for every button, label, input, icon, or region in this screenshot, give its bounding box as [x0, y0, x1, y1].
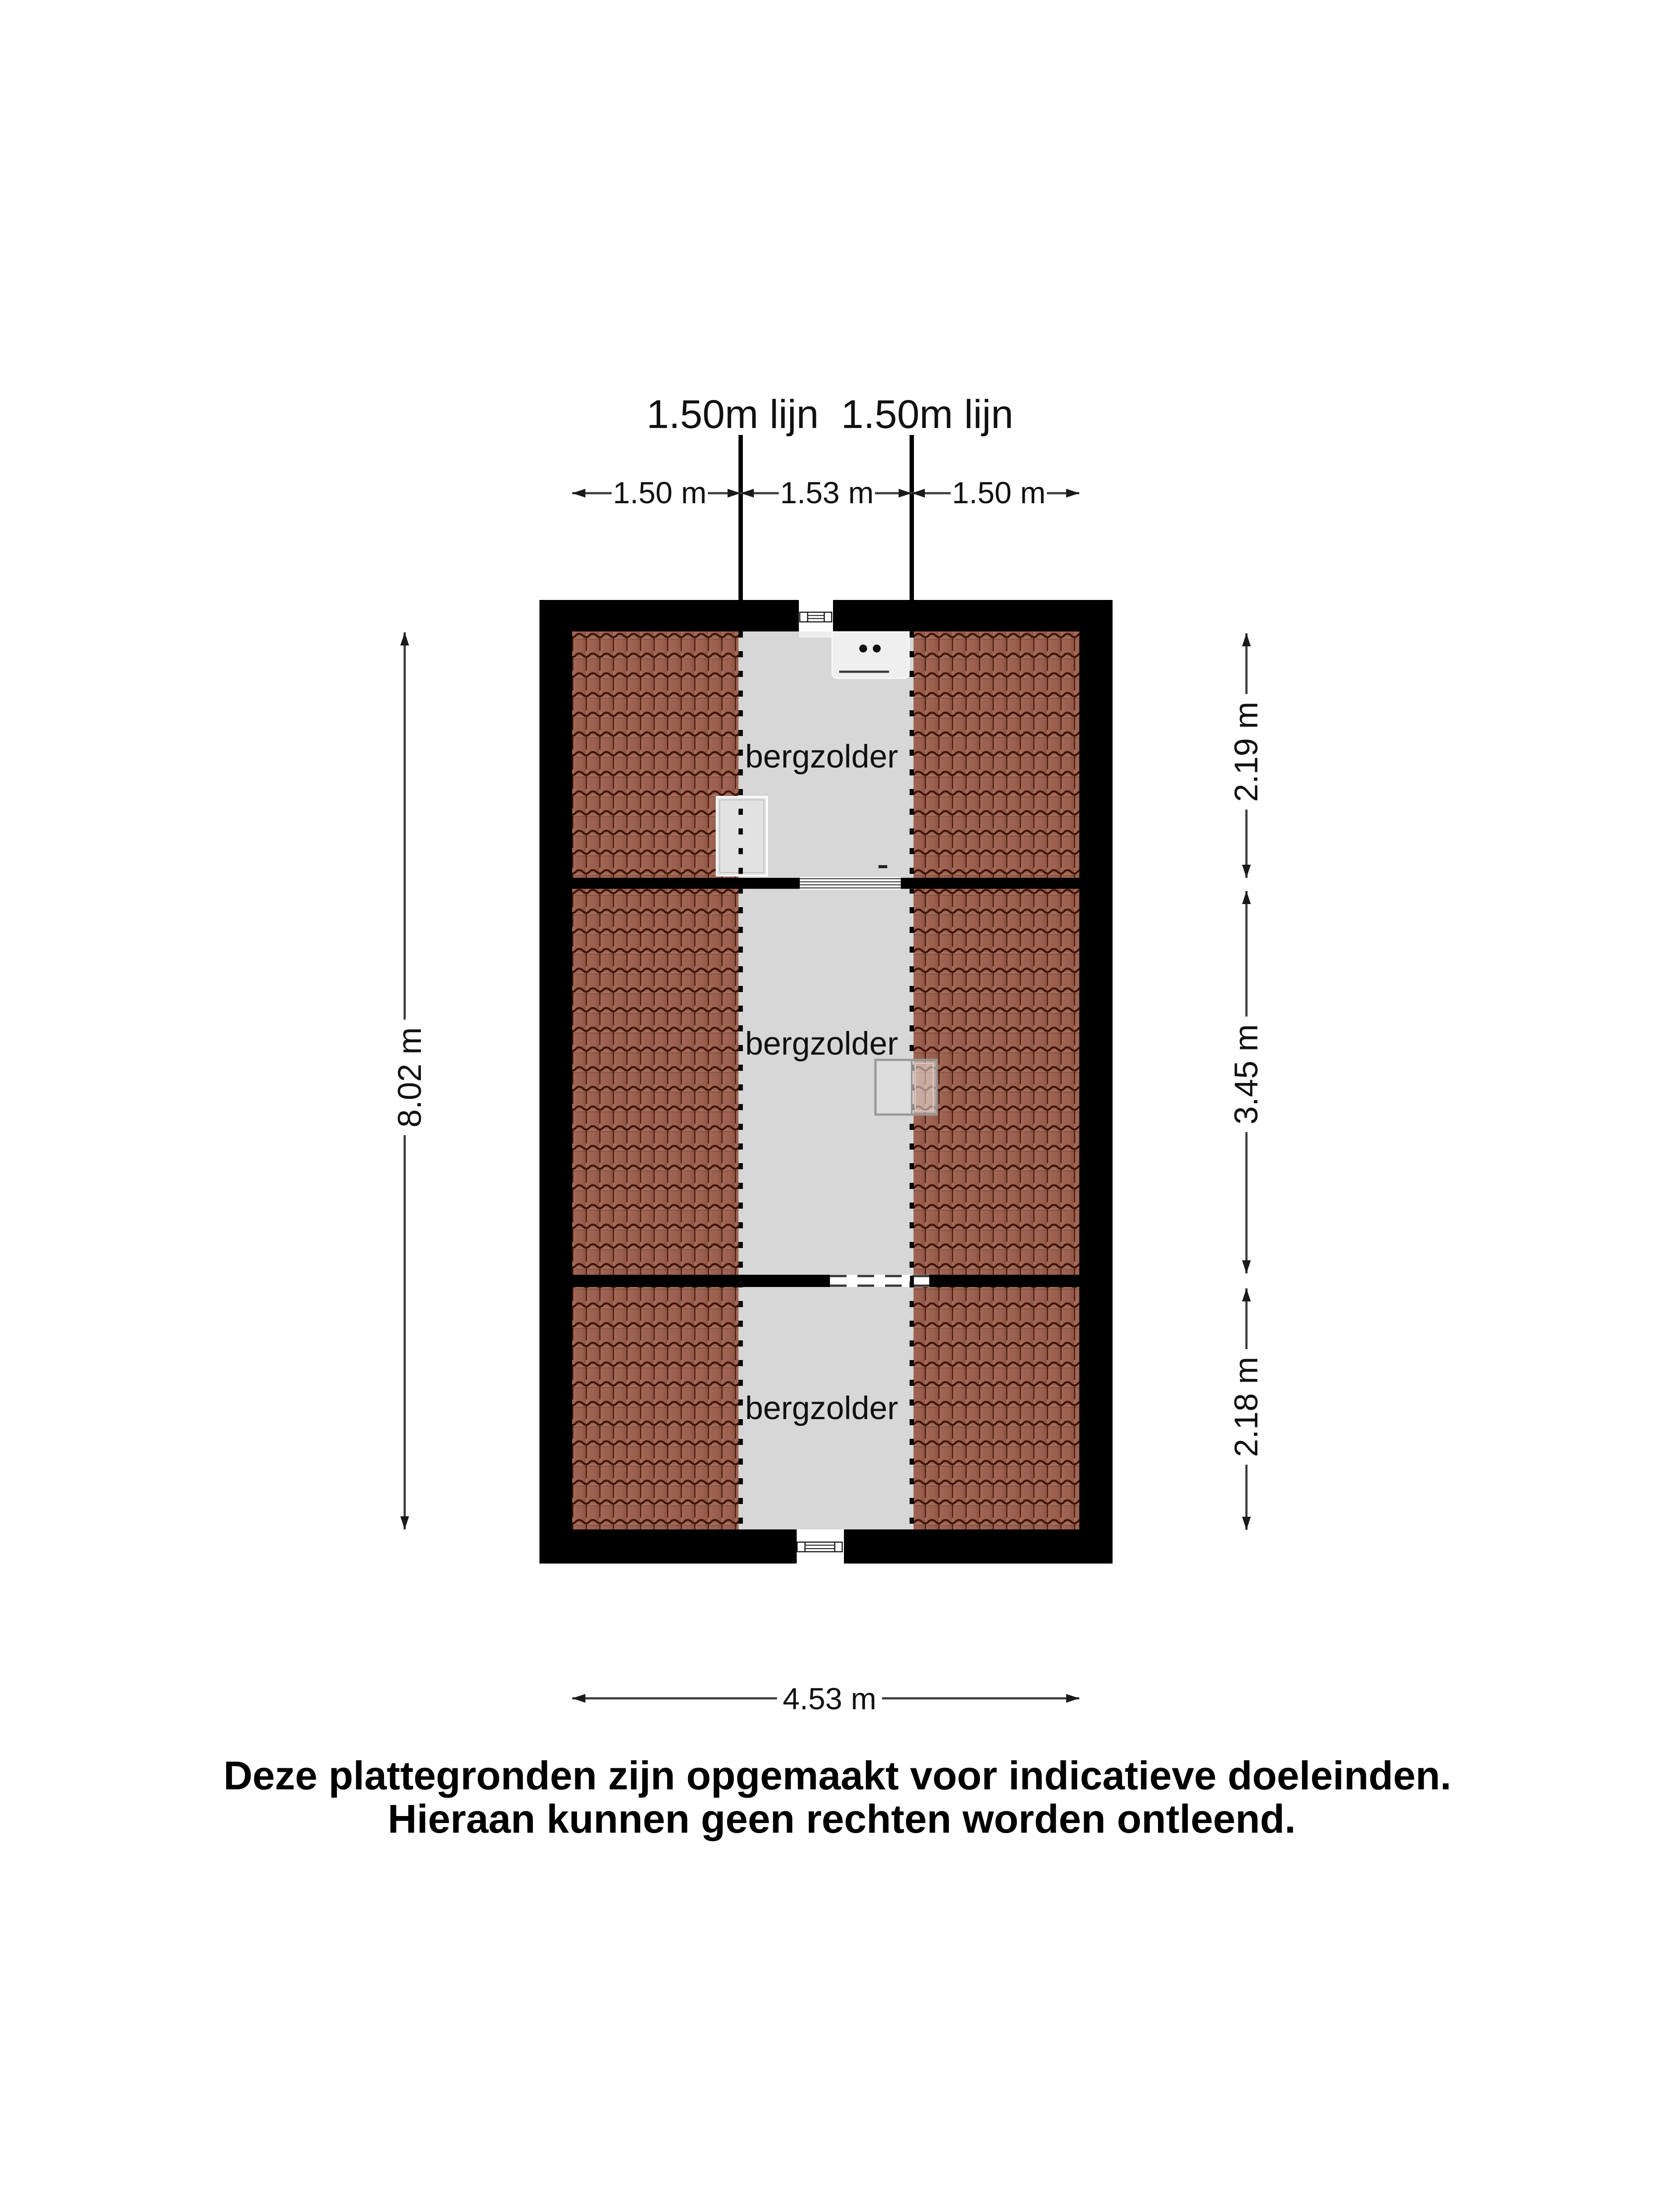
svg-text:1.53 m: 1.53 m [780, 476, 874, 510]
svg-text:4.53 m: 4.53 m [783, 1682, 876, 1716]
svg-text:bergzolder: bergzolder [745, 1025, 898, 1062]
svg-text:1.50m lijn 1.50m lijn: 1.50m lijn 1.50m lijn [647, 392, 1014, 437]
svg-text:Deze plattegronden zijn opgema: Deze plattegronden zijn opgemaakt voor i… [224, 1753, 1452, 1798]
svg-text:2.19 m: 2.19 m [1228, 701, 1264, 802]
svg-text:3.45 m: 3.45 m [1228, 1024, 1264, 1124]
svg-text:bergzolder: bergzolder [745, 738, 898, 775]
svg-text:2.18 m: 2.18 m [1228, 1357, 1264, 1457]
svg-text:1.50 m: 1.50 m [952, 476, 1046, 510]
svg-text:bergzolder: bergzolder [745, 1390, 898, 1426]
svg-text:8.02 m: 8.02 m [391, 1027, 428, 1127]
svg-text:1.50 m: 1.50 m [613, 476, 707, 510]
svg-text:Hieraan kunnen geen rechten wo: Hieraan kunnen geen rechten worden ontle… [388, 1797, 1295, 1841]
